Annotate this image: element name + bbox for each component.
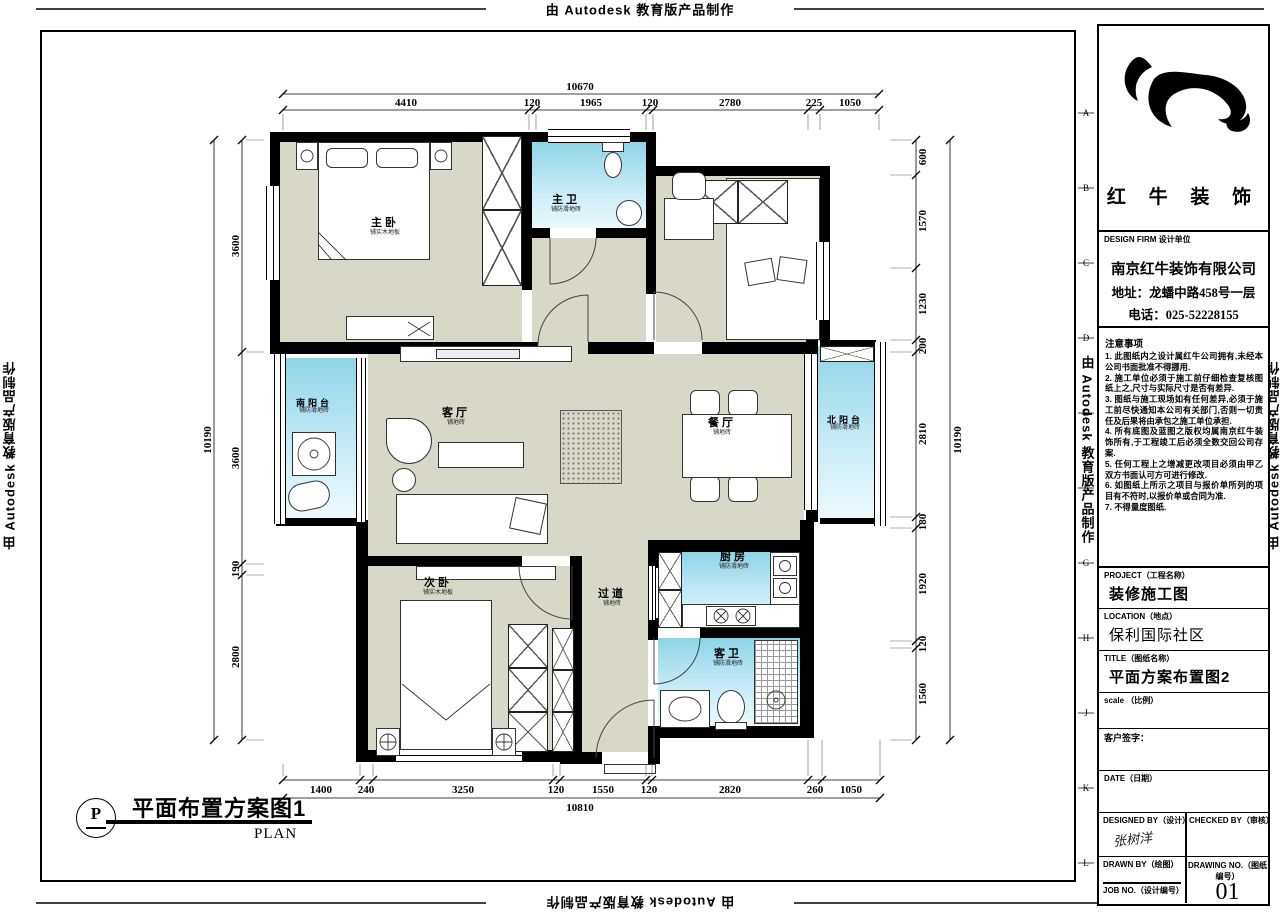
grid-letter: B bbox=[1083, 183, 1089, 193]
cad-sheet: { "watermark": { "text": "由 Autodesk 教育版… bbox=[0, 0, 1280, 916]
wall bbox=[522, 228, 550, 238]
designer-signature: 张树洋 bbox=[1112, 827, 1153, 850]
wall bbox=[806, 340, 818, 354]
notes-section: 注意事项 1. 此图纸内之设计属红牛公司拥有,未经本公司书面批准不得挪用. 2.… bbox=[1105, 336, 1263, 562]
project-label: PROJECT（工程名称） bbox=[1104, 570, 1190, 581]
grid-letter: C bbox=[1083, 258, 1089, 268]
designed-checked-row: DESIGNED BY（设计） 张树洋 CHECKED BY（审核） bbox=[1099, 812, 1268, 856]
sheet-title-value: 平面方案布置图2 bbox=[1109, 666, 1230, 687]
date-label: DATE（日期） bbox=[1104, 773, 1157, 784]
second-bed bbox=[400, 600, 492, 750]
client-signature-row: 客户签字： bbox=[1099, 728, 1268, 770]
room-finish: 铺地砖 bbox=[442, 420, 470, 426]
grid-letter: K bbox=[1083, 783, 1090, 793]
wall bbox=[356, 556, 368, 762]
balcony-door-window bbox=[356, 358, 366, 522]
room-name: 餐厅 bbox=[708, 418, 736, 430]
dim-seg: 1050 bbox=[840, 784, 862, 796]
wardrobe bbox=[508, 624, 548, 668]
nightstand bbox=[430, 142, 452, 170]
rug bbox=[560, 410, 622, 484]
dining-chair bbox=[728, 390, 758, 416]
sheet-title-row: TITLE（图纸名称） 平面方案布置图2 bbox=[1099, 650, 1268, 692]
dim-seg: 200 bbox=[917, 338, 929, 355]
dim-total-bottom: 10810 bbox=[566, 802, 594, 814]
chair bbox=[672, 172, 706, 200]
date-row: DATE（日期） bbox=[1099, 770, 1268, 812]
room-finish: 铺实木地板 bbox=[370, 230, 400, 236]
room-label-master-bath: 主卫 铺防滑地砖 bbox=[551, 195, 581, 213]
cushion bbox=[744, 258, 776, 286]
room-name: 厨房 bbox=[719, 552, 749, 564]
drawn-job-row: DRAWN BY（绘图） JOB NO.（设计编号） DRAWING NO.（图… bbox=[1099, 856, 1268, 903]
watermark-bottom: 由 Autodesk 教育版产品制作 bbox=[546, 894, 734, 913]
scale-label: scale （比例） bbox=[1104, 695, 1158, 706]
room-label-dining: 餐厅 铺地砖 bbox=[708, 418, 736, 436]
drawing-no-value: 01 bbox=[1187, 879, 1268, 906]
room-label-hallway: 过道 铺地砖 bbox=[598, 589, 626, 607]
grid-letter: G bbox=[1083, 558, 1090, 568]
grid-letter: A bbox=[1083, 108, 1090, 118]
wall bbox=[596, 228, 648, 238]
sheet-title-label: TITLE（图纸名称） bbox=[1104, 653, 1174, 664]
designed-by-label: DESIGNED BY（设计） bbox=[1103, 815, 1190, 826]
wall bbox=[820, 166, 830, 246]
dim-seg: 3250 bbox=[452, 784, 474, 796]
north-balcony-floor bbox=[818, 346, 874, 518]
client-signature-label: 客户签字： bbox=[1104, 731, 1149, 744]
pillow bbox=[376, 148, 418, 168]
shower bbox=[754, 640, 798, 724]
room-name: 客厅 bbox=[442, 408, 470, 420]
dim-seg: 1400 bbox=[310, 784, 332, 796]
wardrobe bbox=[552, 628, 574, 670]
note-item: 5. 任何工程上之增减更改项目必须由甲乙双方书面认可方可进行修改. bbox=[1105, 459, 1263, 481]
fridge-cabinet bbox=[658, 590, 682, 628]
room-name: 主卧 bbox=[370, 218, 400, 230]
room-label-living: 客厅 铺地砖 bbox=[442, 408, 470, 426]
fridge-cabinet bbox=[658, 552, 682, 590]
grid-letter: J bbox=[1084, 708, 1088, 718]
dining-table bbox=[682, 414, 792, 478]
wall bbox=[700, 628, 814, 638]
company-logo-text: 红 牛 装 饰 bbox=[1099, 182, 1268, 209]
dim-seg: 180 bbox=[917, 514, 929, 531]
room-finish: 铺防滑地砖 bbox=[296, 409, 332, 415]
note-item: 7. 不得量度图纸. bbox=[1105, 502, 1263, 513]
watermark-left: 由 Autodesk 教育版产品制作 bbox=[1, 361, 20, 549]
room-name: 客卫 bbox=[713, 649, 743, 661]
room-label-south-balcony: 南阳台 铺防滑地砖 bbox=[296, 399, 332, 415]
entry-threshold bbox=[604, 764, 656, 774]
side-table bbox=[392, 468, 416, 492]
room-finish: 铺防滑地砖 bbox=[551, 207, 581, 213]
wall bbox=[648, 540, 658, 568]
dim-seg: 2810 bbox=[917, 423, 929, 445]
room-label-master-bedroom: 主卧 铺实木地板 bbox=[370, 218, 400, 236]
dim-seg: 1920 bbox=[917, 573, 929, 595]
toilet bbox=[717, 690, 745, 724]
nightstand bbox=[376, 728, 400, 756]
location-row: LOCATION（地点） 保利国际社区 bbox=[1099, 608, 1268, 650]
vanity bbox=[660, 690, 710, 728]
dim-seg: 120 bbox=[548, 784, 565, 796]
design-firm-row: DESIGN FIRM 设计单位 bbox=[1099, 230, 1268, 252]
company-info: 南京红牛装饰有限公司 地址：龙蟠中路458号一层 电话：025-52228155 bbox=[1099, 256, 1268, 326]
room-finish: 铺防滑地砖 bbox=[719, 564, 749, 570]
room-finish: 铺防滑地砖 bbox=[713, 661, 743, 667]
watermark-right-inner: 由 Autodesk 教育版产品制作 bbox=[1078, 356, 1097, 544]
divider bbox=[1099, 326, 1268, 328]
tv bbox=[436, 349, 520, 359]
grid-letter: L bbox=[1083, 858, 1089, 868]
wall bbox=[702, 342, 818, 354]
wall bbox=[820, 518, 876, 524]
dim-seg: 3600 bbox=[230, 447, 242, 469]
cooktop bbox=[706, 606, 756, 626]
toilet bbox=[604, 152, 622, 178]
project-row: PROJECT（工程名称） 装修施工图 bbox=[1099, 566, 1268, 608]
room-label-north-balcony: 北阳台 铺防滑地砖 bbox=[827, 416, 863, 432]
corridor-floor bbox=[532, 238, 646, 354]
watermark-top: 由 Autodesk 教育版产品制作 bbox=[546, 0, 734, 19]
checked-by-label: CHECKED BY（审核） bbox=[1189, 815, 1274, 826]
wall bbox=[276, 518, 362, 526]
dining-chair bbox=[690, 390, 720, 416]
sofa-cushion bbox=[509, 497, 547, 535]
company-logo-icon bbox=[1104, 46, 1264, 166]
wall bbox=[648, 628, 658, 640]
wardrobe bbox=[482, 136, 522, 210]
nightstand bbox=[296, 142, 318, 170]
toilet-tank bbox=[602, 142, 624, 152]
dim-seg: 1965 bbox=[580, 97, 602, 109]
grid-letter: E bbox=[1083, 408, 1089, 418]
kitchen-sliding-door bbox=[648, 566, 656, 620]
dim-total-left: 10190 bbox=[202, 426, 214, 454]
wardrobe bbox=[552, 712, 574, 752]
dim-seg: 1550 bbox=[592, 784, 614, 796]
dim-seg: 2800 bbox=[230, 646, 242, 668]
room-name: 过道 bbox=[598, 589, 626, 601]
grid-letter: D bbox=[1083, 333, 1090, 343]
room-finish: 铺实木地板 bbox=[423, 590, 453, 596]
dim-seg: 225 bbox=[806, 97, 823, 109]
wall bbox=[522, 132, 532, 290]
balcony-cabinet bbox=[820, 346, 874, 362]
coffee-table bbox=[438, 442, 524, 468]
design-firm-label: DESIGN FIRM 设计单位 bbox=[1104, 234, 1191, 245]
location-label: LOCATION（地点） bbox=[1104, 611, 1177, 622]
dim-seg: 1230 bbox=[917, 293, 929, 315]
pillow bbox=[326, 148, 368, 168]
drawn-by-label: DRAWN BY（绘图） bbox=[1103, 859, 1179, 870]
grid-letter: H bbox=[1083, 633, 1090, 643]
company-phone: 电话：025-52228155 bbox=[1099, 304, 1268, 323]
plan-caption-title: 平面布置方案图1 bbox=[132, 791, 306, 823]
caption-underline bbox=[106, 820, 312, 824]
job-no-label: JOB NO.（设计编号） bbox=[1103, 885, 1184, 896]
room-name: 主卫 bbox=[551, 195, 581, 207]
dim-seg: 1050 bbox=[839, 97, 861, 109]
wall bbox=[646, 132, 656, 242]
kitchen-sink bbox=[773, 556, 797, 576]
room-name: 次卧 bbox=[423, 578, 453, 590]
dining-chair bbox=[728, 476, 758, 502]
dim-total-right: 10190 bbox=[952, 426, 964, 454]
balcony-window bbox=[274, 354, 286, 524]
note-item: 4. 所有底图及蓝图之版权均属南京红牛装饰所有,于工程竣工后必须全数交回公司存案… bbox=[1105, 426, 1263, 458]
armchair bbox=[386, 418, 432, 464]
desk bbox=[664, 198, 714, 240]
company-address: 地址：龙蟠中路458号一层 bbox=[1099, 282, 1268, 301]
washing-machine bbox=[292, 432, 336, 476]
dim-seg: 2780 bbox=[719, 97, 741, 109]
toilet-tank bbox=[715, 722, 747, 730]
room-finish: 铺地砖 bbox=[598, 601, 626, 607]
note-item: 3. 图纸与施工现场如有任何差异,必须于施工前尽快通知本公司有关部门,否则一切责… bbox=[1105, 394, 1263, 426]
room-label-second-bedroom: 次卧 铺实木地板 bbox=[423, 578, 453, 596]
dim-seg: 120 bbox=[917, 636, 929, 653]
project-value: 装修施工图 bbox=[1109, 583, 1189, 604]
window bbox=[804, 354, 818, 510]
wardrobe bbox=[508, 668, 548, 712]
dim-seg: 120 bbox=[641, 784, 658, 796]
wardrobe bbox=[552, 670, 574, 712]
dim-seg: 1570 bbox=[917, 210, 929, 232]
balcony-window bbox=[874, 342, 886, 526]
wall bbox=[646, 242, 656, 294]
wardrobe bbox=[738, 180, 788, 224]
washbasin bbox=[616, 200, 642, 226]
notes-title: 注意事项 bbox=[1105, 336, 1263, 350]
title-block: 红 牛 装 饰 DESIGN FIRM 设计单位 南京红牛装饰有限公司 地址：龙… bbox=[1097, 24, 1270, 906]
room-finish: 铺防滑地砖 bbox=[827, 426, 863, 432]
plan-caption-subtitle: PLAN bbox=[254, 826, 297, 843]
note-item: 2. 施工单位必须于施工前仔细检查复核图纸上之,尺寸与实际尺寸是否有差异. bbox=[1105, 373, 1263, 395]
dresser bbox=[346, 316, 434, 340]
dim-seg: 2820 bbox=[719, 784, 741, 796]
grid-letter: F bbox=[1083, 483, 1088, 493]
wardrobe bbox=[482, 210, 522, 286]
window bbox=[816, 242, 830, 320]
dim-seg: 1560 bbox=[917, 683, 929, 705]
dim-seg: 120 bbox=[524, 97, 541, 109]
dim-seg: 240 bbox=[358, 784, 375, 796]
dim-seg: 120 bbox=[642, 97, 659, 109]
dim-total-top: 10670 bbox=[566, 81, 594, 93]
note-item: 6. 如图纸上所示之项目与报价单所列的项目有不符时,以报价单或合同为准. bbox=[1105, 480, 1263, 502]
nightstand bbox=[492, 728, 516, 756]
cushion bbox=[776, 256, 807, 284]
wall bbox=[588, 342, 654, 354]
plan-marker-letter: P bbox=[91, 804, 101, 823]
company-name: 南京红牛装饰有限公司 bbox=[1099, 258, 1268, 279]
dim-seg: 4410 bbox=[395, 97, 417, 109]
dim-seg: 190 bbox=[230, 561, 242, 578]
dim-seg: 3600 bbox=[230, 235, 242, 257]
note-item: 1. 此图纸内之设计属红牛公司拥有,未经本公司书面批准不得挪用. bbox=[1105, 351, 1263, 373]
window bbox=[266, 186, 280, 280]
room-label-guest-bath: 客卫 铺防滑地砖 bbox=[713, 649, 743, 667]
wall bbox=[806, 508, 818, 522]
dining-chair bbox=[690, 476, 720, 502]
scale-row: scale （比例） bbox=[1099, 692, 1268, 728]
plan-marker: P bbox=[76, 798, 116, 838]
dim-seg: 600 bbox=[917, 149, 929, 166]
dim-seg: 260 bbox=[807, 784, 824, 796]
room-label-kitchen: 厨房 铺防滑地砖 bbox=[719, 552, 749, 570]
location-value: 保利国际社区 bbox=[1109, 624, 1205, 645]
hallway-floor bbox=[578, 554, 648, 752]
kitchen-sink bbox=[773, 578, 797, 598]
room-finish: 铺地砖 bbox=[708, 430, 736, 436]
window bbox=[548, 129, 630, 143]
wall bbox=[356, 556, 522, 566]
